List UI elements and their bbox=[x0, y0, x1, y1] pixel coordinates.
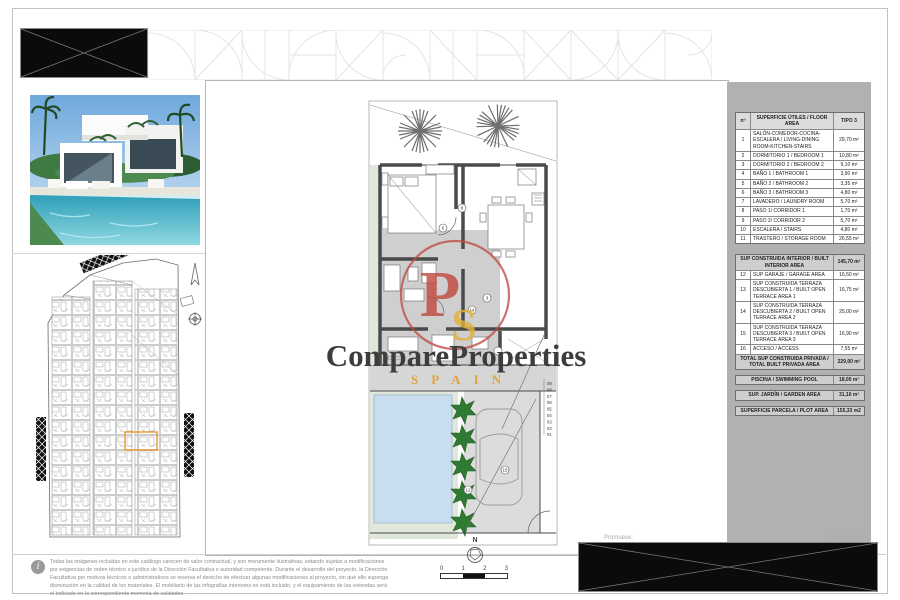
info-icon: i bbox=[31, 560, 45, 574]
scale-track bbox=[440, 573, 508, 579]
area-table: nº SUPERFICIE ÚTILES / FLOOR AREA TIPO 3… bbox=[735, 112, 865, 244]
disclaimer-text: Todas las imágenes incluidas en este cat… bbox=[50, 558, 400, 599]
col-type: TIPO 3 bbox=[834, 113, 864, 129]
table-row: 10 ESCALERA / STAIRS 4,80 m² bbox=[736, 225, 864, 234]
plot-row: SUPERFICIE PARCELA / PLOT AREA 155,33 m2 bbox=[736, 407, 864, 415]
table-row: 7 LAVADERO / LAUNDRY ROOM 5,70 m² bbox=[736, 197, 864, 206]
table-row: 9 PASO 2/ CORRIDOR 2 5,70 m² bbox=[736, 216, 864, 225]
area-table-header: nº SUPERFICIE ÚTILES / FLOOR AREA TIPO 3 bbox=[736, 113, 864, 129]
col-name: SUPERFICIE ÚTILES / FLOOR AREA bbox=[751, 113, 834, 129]
table-row: 1 SALÓN-COMEDOR-COCINA-ESCALERA / LIVING… bbox=[736, 129, 864, 151]
pool-row: PISCINA / SWIMMING POOL 18,00 m² bbox=[736, 376, 864, 384]
table-row: 15 SUP CONSTRUIDA TERRAZA DESCUBIERTA 3 … bbox=[736, 323, 864, 345]
pool-row-table: PISCINA / SWIMMING POOL 18,00 m² bbox=[735, 375, 865, 385]
plot-row-table: SUPERFICIE PARCELA / PLOT AREA 155,33 m2 bbox=[735, 406, 865, 416]
table-row: 12 SUP GARAJE / GARAGE AREA 16,50 m² bbox=[736, 270, 864, 279]
table-row: 4 BAÑO 1 / BATHROOM 1 3,90 m² bbox=[736, 169, 864, 178]
logo-placeholder-bottom bbox=[578, 542, 878, 592]
scale-bar: 0 1 2 3 bbox=[440, 566, 508, 579]
svg-text:07: 07 bbox=[547, 394, 552, 399]
garden-row: SUP. JARDÍN / GARDEN AREA 31,16 m² bbox=[736, 391, 864, 399]
svg-text:15: 15 bbox=[503, 468, 508, 473]
svg-text:12: 12 bbox=[466, 488, 471, 493]
svg-text:04: 04 bbox=[547, 413, 552, 418]
drawing-sheet: 09 08 07 06 05 04 03 02 01 8 6 3 14 12 1… bbox=[0, 0, 900, 600]
table-row: 8 PASO 1/ CORRIDOR 1 1,70 m² bbox=[736, 206, 864, 215]
north-label: N bbox=[445, 537, 505, 544]
promueve-label: Promueve: bbox=[604, 535, 633, 541]
svg-text:05: 05 bbox=[547, 407, 552, 412]
comercializa-label: Comercializa: bbox=[828, 535, 864, 541]
survey-point-icon bbox=[188, 312, 202, 326]
pool-shape bbox=[374, 395, 452, 523]
watermark-brand: CompareProperties bbox=[195, 340, 717, 371]
garden-row-table: SUP. JARDÍN / GARDEN AREA 31,16 m² bbox=[735, 390, 865, 400]
table-row: 16 ACCESO / ACCESS 7,55 m² bbox=[736, 344, 864, 353]
svg-text:08: 08 bbox=[547, 387, 552, 392]
svg-text:03: 03 bbox=[547, 419, 552, 424]
scale-ticks: 0 1 2 3 bbox=[440, 566, 508, 573]
villa-photo bbox=[30, 95, 200, 245]
table-row: 14 SUP CONSTRUIDA TERRAZA DESCUBIERTA 2 … bbox=[736, 301, 864, 323]
svg-text:01: 01 bbox=[547, 432, 552, 437]
table-row: 6 BAÑO 3 / BATHROOM 3 4,80 m² bbox=[736, 188, 864, 197]
deco-pattern-strip bbox=[148, 30, 712, 80]
svg-text:06: 06 bbox=[547, 400, 552, 405]
col-num: nº bbox=[736, 113, 751, 129]
logo-placeholder-top bbox=[20, 28, 148, 78]
area-table-rows: 1 SALÓN-COMEDOR-COCINA-ESCALERA / LIVING… bbox=[736, 129, 864, 243]
left-panel-divider bbox=[12, 253, 205, 254]
north-arrow-icon bbox=[191, 263, 199, 285]
table-row: 2 DORMITORIO 1 / BEDROOM 1 10,80 m² bbox=[736, 151, 864, 160]
scale-fill bbox=[463, 574, 485, 578]
table-row: 3 DORMITORIO 2 / BEDROOM 2 9,10 m² bbox=[736, 160, 864, 169]
area-table-wrap: nº SUPERFICIE ÚTILES / FLOOR AREA TIPO 3… bbox=[735, 112, 863, 416]
svg-text:02: 02 bbox=[547, 426, 552, 431]
private-total-row: TOTAL SUP CONSTRUIDA PRIVADA / TOTAL BUI… bbox=[736, 354, 864, 370]
built-area-rows: 12 SUP GARAJE / GARAGE AREA 16,50 m² 13 … bbox=[736, 270, 864, 354]
table-row: 11 TRASTERO / STORAGE ROOM 26,55 m² bbox=[736, 234, 864, 243]
table-row: 13 SUP CONSTRUIDA TERRAZA DESCUBIERTA 1 … bbox=[736, 279, 864, 301]
interior-total-row: SUP CONSTRUIDA INTERIOR / BUILT INTERIOR… bbox=[736, 255, 864, 270]
compass-icon bbox=[466, 546, 484, 564]
built-area-table: SUP CONSTRUIDA INTERIOR / BUILT INTERIOR… bbox=[735, 254, 865, 370]
site-plan bbox=[28, 255, 205, 545]
table-row: 5 BAÑO 2 / BATHROOM 2 3,35 m² bbox=[736, 179, 864, 188]
watermark-sub: SPAIN bbox=[195, 372, 717, 388]
